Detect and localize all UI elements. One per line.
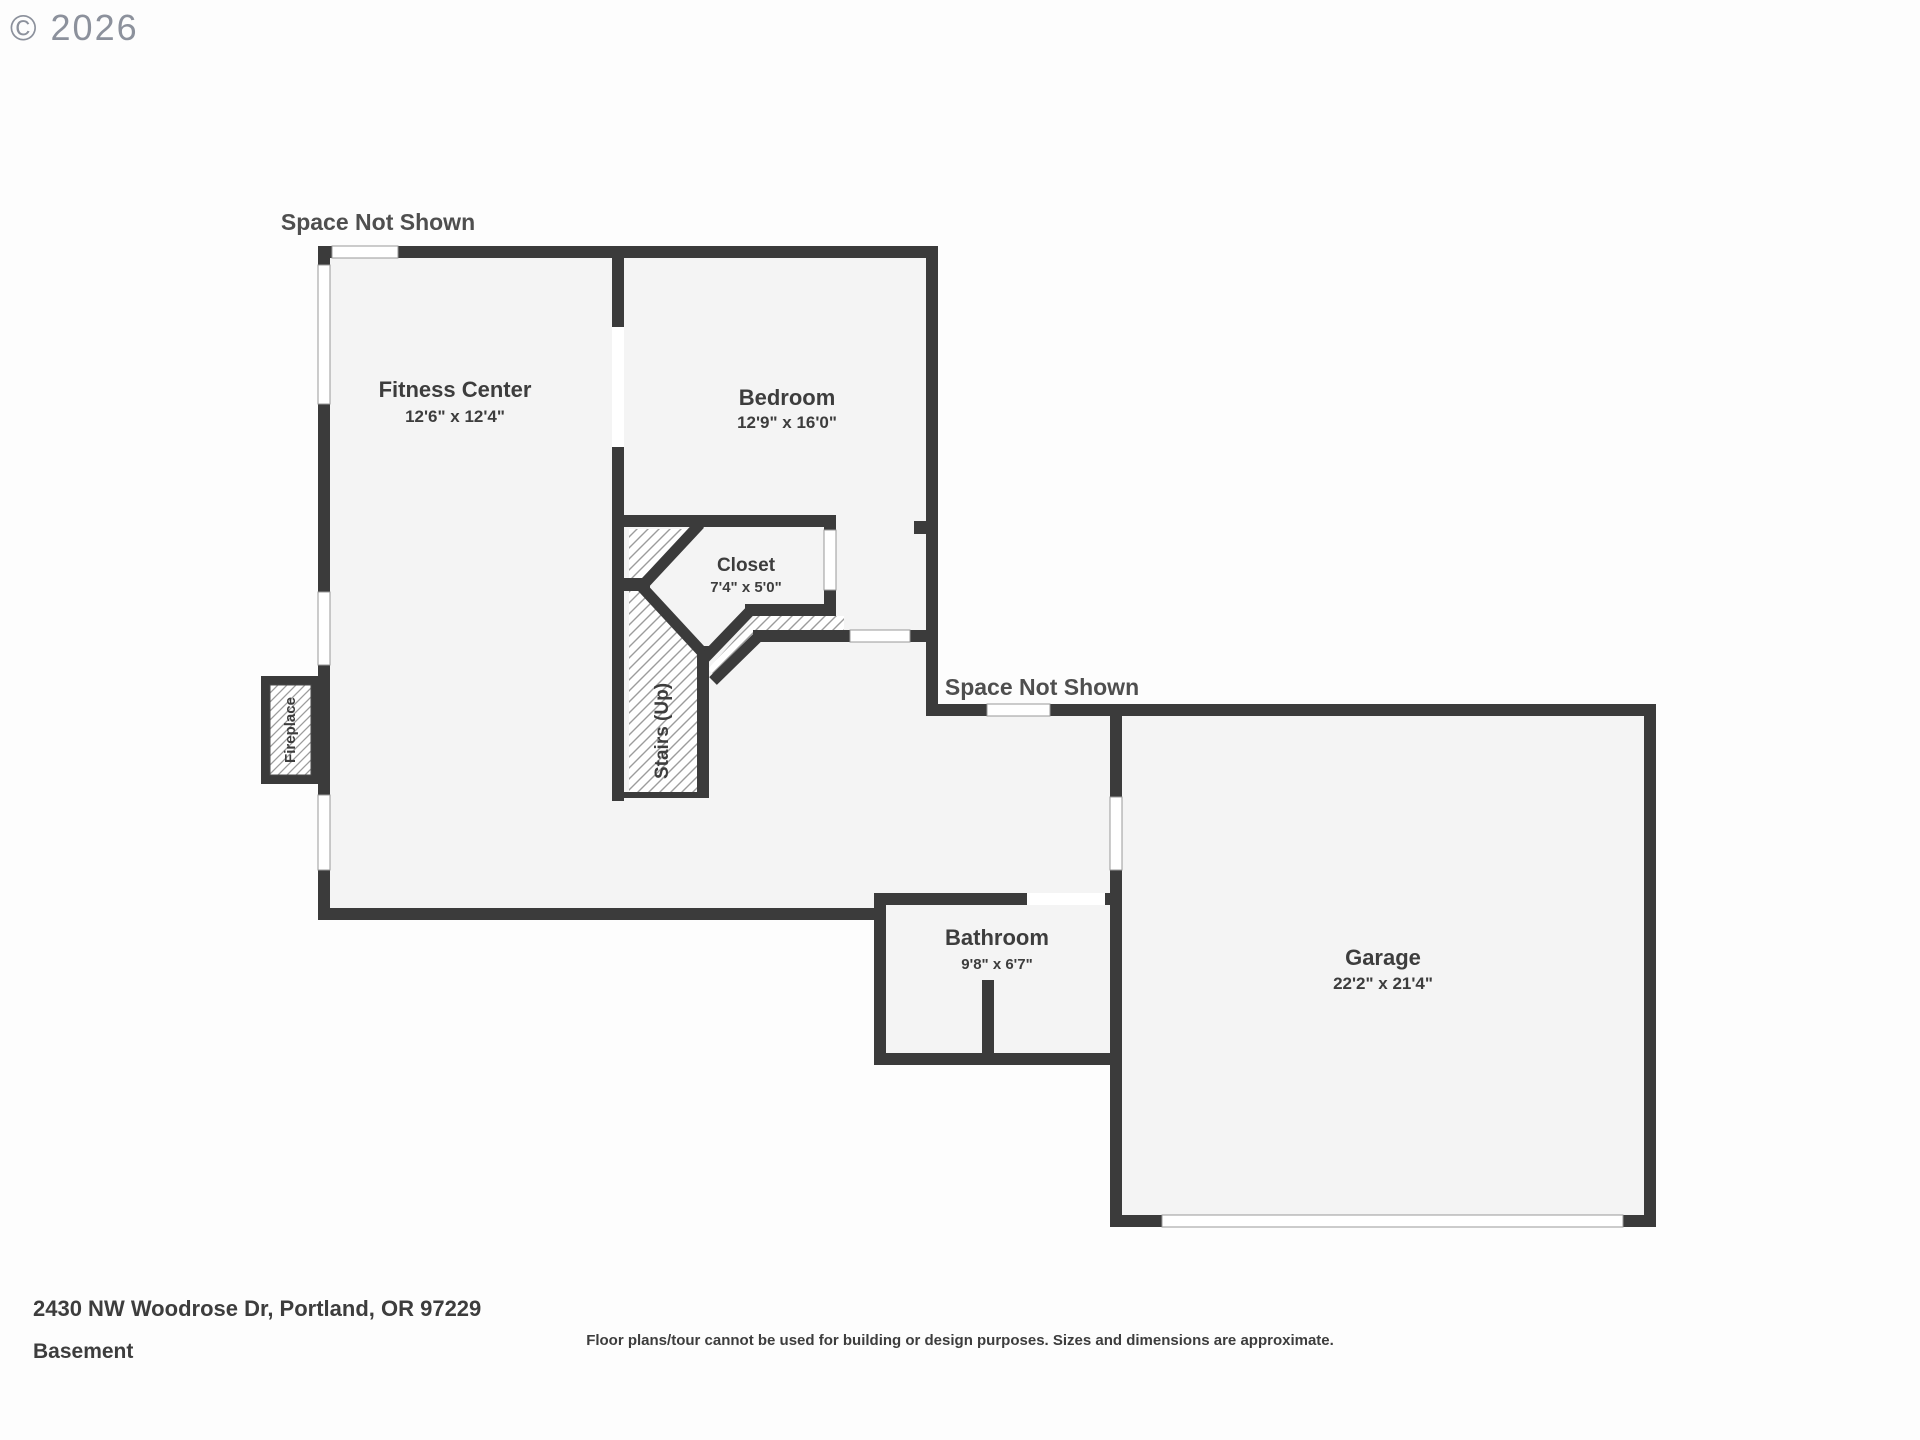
bedroom-door-gap [612, 327, 624, 447]
footer-disclaimer: Floor plans/tour cannot be used for buil… [586, 1332, 1334, 1349]
bathroom-floor [880, 899, 1116, 1059]
wall-garage-left [1110, 704, 1122, 1227]
wall-main-bottom [318, 908, 886, 920]
bedroom-bottom-door [850, 630, 910, 642]
left-window-3 [318, 795, 330, 870]
fireplace-label: Fireplace [282, 697, 299, 763]
fitness-room-name: Fitness Center [379, 377, 532, 402]
garage-room-dims: 22'2" x 21'4" [1333, 974, 1433, 993]
closet-right-window [824, 530, 836, 590]
footer-address: 2430 NW Woodrose Dr, Portland, OR 97229 [33, 1296, 481, 1321]
wall-landing-top [745, 604, 836, 616]
bathroom-room-dims: 9'8" x 6'7" [961, 956, 1032, 973]
wall-bedroom-right [926, 246, 938, 716]
wall-main-top [318, 246, 938, 258]
floor-plan-page: © 2026 Space Not Shown Space Not Shown F… [0, 0, 1920, 1440]
fitness-room-dims: 12'6" x 12'4" [405, 407, 505, 426]
bathroom-room-name: Bathroom [945, 925, 1049, 950]
stairs-label: Stairs (Up) [652, 683, 673, 779]
garage-left-window [1110, 797, 1122, 870]
copyright-text: © 2026 [10, 7, 139, 48]
garage-door-opening [1162, 1215, 1623, 1227]
space-not-shown-top-label: Space Not Shown [281, 209, 475, 235]
bedroom-room-dims: 12'9" x 16'0" [737, 413, 837, 432]
wall-garage-top [1110, 704, 1656, 716]
bedroom-room-name: Bedroom [739, 385, 836, 410]
stairs-bottom-edge [612, 792, 709, 798]
top-wall-opening [332, 246, 398, 258]
floor-plan-svg: © 2026 Space Not Shown Space Not Shown F… [0, 0, 1920, 1440]
closet-room-name: Closet [717, 555, 776, 576]
space-not-shown-opening [987, 704, 1050, 716]
space-not-shown-middle-label: Space Not Shown [945, 674, 1139, 700]
closet-room-dims: 7'4" x 5'0" [710, 579, 781, 596]
wall-bathroom-bottom [874, 1053, 1122, 1065]
wall-bathroom-stub [982, 980, 994, 1065]
wall-garage-right [1644, 704, 1656, 1227]
wall-bathroom-left [874, 893, 886, 1065]
left-window-2 [318, 592, 330, 665]
footer-level: Basement [33, 1340, 133, 1363]
wall-closet-top [612, 515, 836, 527]
garage-room-name: Garage [1345, 945, 1421, 970]
left-window-1 [318, 265, 330, 404]
bathroom-door-gap [1027, 893, 1105, 905]
wall-stairs-right [697, 646, 709, 795]
wall-bedroom-right-stub [914, 521, 926, 534]
